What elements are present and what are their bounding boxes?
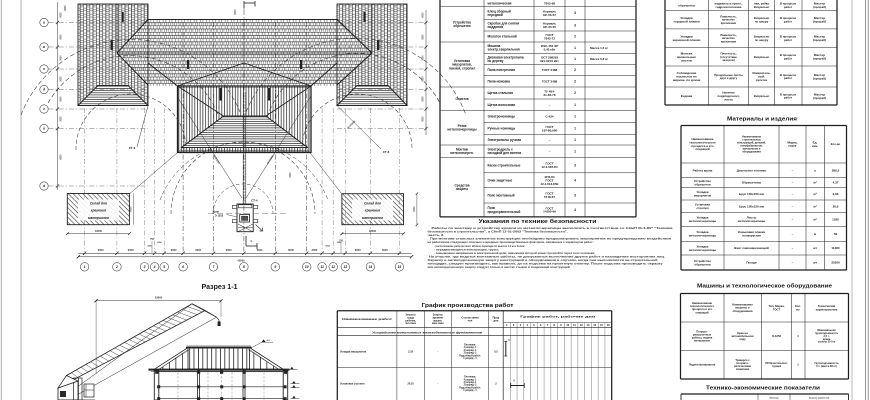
svg-text:безопасности в строительстве",: безопасности в строительстве", а СНиП 12… xyxy=(428,230,568,234)
svg-text:2: 2 xyxy=(574,35,576,39)
svg-text:Очки защитные: Очки защитные xyxy=(488,178,513,182)
svg-text:СТ-3: СТ-3 xyxy=(129,146,136,150)
svg-text:- передвигающиеся конструкции,: - передвигающиеся конструкции, грузы; xyxy=(434,248,499,251)
svg-text:Визуально: Визуально xyxy=(754,5,770,9)
svg-text:3 разряд -1: 3 разряд -1 xyxy=(464,382,477,384)
svg-text:м³: м³ xyxy=(813,181,816,185)
svg-text:Пояс монтажный: Пояс монтажный xyxy=(488,193,515,197)
svg-text:Щетка стальная: Щетка стальная xyxy=(488,91,514,95)
svg-text:трукция: трукция xyxy=(772,366,782,368)
svg-text:13: 13 xyxy=(343,265,347,269)
svg-text:При монтаже стальных элементов: При монтаже стальных элементов конструкц… xyxy=(430,237,672,241)
svg-text:2: 2 xyxy=(574,68,576,72)
svg-text:Масса 1,6 кг: Масса 1,6 кг xyxy=(590,46,609,50)
svg-text:4 разряд -1: 4 разряд -1 xyxy=(464,378,477,381)
svg-text:4: 4 xyxy=(153,265,156,269)
svg-text:маш.смен: маш.смен xyxy=(432,322,444,325)
svg-text:3000: 3000 xyxy=(195,248,201,252)
svg-text:ГОСТ 2488: ГОСТ 2488 xyxy=(542,79,558,83)
svg-text:Дизельное топливо: Дизельное топливо xyxy=(737,168,767,172)
svg-text:3000: 3000 xyxy=(312,248,318,252)
svg-text:материалов: материалов xyxy=(88,216,109,220)
svg-text:(прораб): (прораб) xyxy=(813,20,826,24)
svg-text:6 т. (масса 93 кг): 6 т. (масса 93 кг) xyxy=(816,364,837,368)
svg-text:Электропилы ручная: Электропилы ручная xyxy=(488,138,522,142)
svg-text:крепления: крепления xyxy=(721,40,736,44)
svg-text:1 разряд - 1: 1 разряд - 1 xyxy=(463,390,477,392)
svg-text:по дереву: по дереву xyxy=(488,59,504,63)
svg-text:3: 3 xyxy=(574,23,576,27)
svg-text:12: 12 xyxy=(331,265,335,269)
svg-text:поддонов: поддонов xyxy=(488,25,504,29)
svg-text:6000: 6000 xyxy=(423,12,425,18)
svg-text:6000: 6000 xyxy=(382,248,388,252)
svg-text:(прораб): (прораб) xyxy=(813,57,826,61)
svg-text:12000: 12000 xyxy=(369,229,377,233)
svg-text:Подсобный рабоч.: Подсобный рабоч. xyxy=(459,386,481,389)
svg-text:Подсобный рабоч.: Подсобный рабоч. xyxy=(459,354,481,357)
svg-text:НР-34-55: НР-34-55 xyxy=(543,25,556,29)
svg-text:металлочерепицы: металлочерепицы xyxy=(738,219,766,223)
svg-text:6000: 6000 xyxy=(131,206,133,212)
svg-text:2 разряд -2: 2 разряд -2 xyxy=(464,353,477,355)
svg-text:1: 1 xyxy=(574,138,576,142)
svg-text:3000: 3000 xyxy=(423,116,425,122)
svg-text:чел: чел xyxy=(468,319,473,322)
svg-text:289,5: 289,5 xyxy=(832,168,840,172)
svg-text:оборудования: оборудования xyxy=(742,149,761,153)
svg-text:12000: 12000 xyxy=(95,229,103,233)
svg-text:часть 3.: часть 3. xyxy=(428,233,445,237)
svg-text:металлочерепицы: металлочерепицы xyxy=(689,219,717,223)
svg-text:площадке, следует производить,: площадке, следует производить, как прави… xyxy=(428,262,664,266)
svg-text:Работы по монтажу и устройству: Работы по монтажу и устройству кровли из… xyxy=(432,226,674,230)
svg-text:Установка стропил: Установка стропил xyxy=(340,382,365,386)
svg-text:г: г xyxy=(43,107,45,111)
svg-text:1: 1 xyxy=(574,127,576,131)
svg-text:шт: шт xyxy=(813,246,818,250)
svg-text:3000: 3000 xyxy=(61,55,63,61)
svg-text:лежней, стропил: лежней, стропил xyxy=(449,66,476,70)
svg-text:Ендова: Ендова xyxy=(681,94,693,98)
svg-text:25300: 25300 xyxy=(831,261,840,265)
svg-text:Пила поперечная: Пила поперечная xyxy=(488,68,516,72)
svg-text:2: 2 xyxy=(574,79,576,83)
svg-text:2,16: 2,16 xyxy=(408,351,413,354)
svg-text:6000: 6000 xyxy=(235,9,237,15)
svg-text:Объемы: Объемы xyxy=(769,397,778,400)
svg-text:листа: листа xyxy=(724,97,733,101)
svg-text:6000: 6000 xyxy=(226,248,232,252)
svg-text:8: 8 xyxy=(243,265,245,269)
svg-text:Плотники:: Плотники: xyxy=(464,377,476,379)
svg-text:3 разряд -1: 3 разряд -1 xyxy=(464,350,477,352)
svg-text:На участке, где ведутся монтаж: На участке, где ведутся монтажные работы… xyxy=(429,254,665,258)
svg-text:Молоток стальной: Молоток стальной xyxy=(488,35,517,39)
svg-text:м³: м³ xyxy=(813,192,816,196)
svg-text:3: 3 xyxy=(574,193,576,197)
svg-text:6000: 6000 xyxy=(414,206,416,212)
svg-text:обрешетки: обрешетки xyxy=(453,24,470,28)
svg-text:(прораб): (прораб) xyxy=(813,76,826,80)
svg-text:Визуально: Визуально xyxy=(754,94,770,98)
svg-text:1 разряд - 1: 1 разряд - 1 xyxy=(463,358,477,360)
svg-text:3: 3 xyxy=(144,265,146,269)
svg-text:по шнуру: по шнуру xyxy=(755,38,769,42)
svg-text:насадкой для винтов: насадкой для винтов xyxy=(488,151,522,155)
svg-text:СТ-6: СТ-6 xyxy=(383,150,390,154)
svg-text:12.4.087-84: 12.4.087-84 xyxy=(541,165,557,169)
svg-text:График производства работ: График производства работ xyxy=(422,302,515,309)
svg-text:- расположение рабочих мест вб: - расположение рабочих мест вблизи переп… xyxy=(434,244,525,248)
svg-text:9: 9 xyxy=(274,265,276,269)
svg-text:6000: 6000 xyxy=(171,248,177,252)
svg-text:обрешетки: обрешетки xyxy=(694,182,710,186)
svg-text:Разрез 1-1: Разрез 1-1 xyxy=(202,284,238,291)
svg-text:и: и xyxy=(43,21,45,25)
svg-text:1: 1 xyxy=(574,57,576,61)
svg-text:операций: операций xyxy=(695,310,708,314)
svg-text:изм.: изм. xyxy=(812,144,818,148)
svg-text:Укладка мауэрлатов: Укладка мауэрлатов xyxy=(340,350,367,354)
svg-text:График работ, рабочие дни: График работ, рабочие дни xyxy=(520,315,596,319)
svg-text:металлочерепицы: металлочерепицы xyxy=(689,234,717,238)
svg-text:Склад для: Склад для xyxy=(364,201,381,205)
svg-text:по шнуру: по шнуру xyxy=(755,19,769,23)
svg-text:1: 1 xyxy=(84,265,86,269)
svg-text:ж: ж xyxy=(42,45,46,49)
svg-text:3000: 3000 xyxy=(423,76,425,82)
svg-text:полукруглая: полукруглая xyxy=(742,234,761,238)
svg-text:хранения: хранения xyxy=(90,209,107,213)
svg-text:друг к другу: друг к другу xyxy=(720,76,738,80)
svg-text:дни: дни xyxy=(493,319,498,322)
svg-text:Гвозди: Гвозди xyxy=(746,261,757,265)
svg-text:Подача материалов: Подача материалов xyxy=(689,363,716,367)
svg-text:крепления: крепления xyxy=(721,21,736,25)
svg-text:9,66: 9,66 xyxy=(833,192,839,196)
svg-text:Электроножницы: Электроножницы xyxy=(488,115,516,119)
svg-text:во: во xyxy=(796,307,800,311)
svg-text:0,45 кВт: 0,45 кВт xyxy=(544,48,556,52)
svg-text:С-424: С-424 xyxy=(545,115,554,119)
svg-text:электр.сверлильная: электр.сверлильная xyxy=(488,48,520,52)
svg-text:5: 5 xyxy=(163,265,165,269)
svg-text:передвой: передвой xyxy=(488,13,503,17)
svg-text:Пила-ножовка: Пила-ножовка xyxy=(488,79,511,83)
svg-text:2: 2 xyxy=(574,91,576,95)
svg-text:е: е xyxy=(43,67,45,71)
svg-text:187-80,000: 187-80,000 xyxy=(542,128,558,132)
svg-text:Обрешетины: Обрешетины xyxy=(742,181,762,185)
svg-text:11: 11 xyxy=(320,265,324,269)
svg-text:4 разряд -1: 4 разряд -1 xyxy=(464,346,477,349)
svg-text:1: 1 xyxy=(574,149,576,153)
svg-text:Кран: Кран xyxy=(213,210,220,214)
svg-text:Очистка: Очистка xyxy=(456,97,469,101)
svg-text:Затраты заработной: Затраты заработной xyxy=(809,397,830,400)
svg-text:ходу: ходу xyxy=(739,338,746,341)
svg-text:м³: м³ xyxy=(813,204,816,208)
svg-text:Э-1252: Э-1252 xyxy=(215,214,224,218)
svg-text:работ: работ xyxy=(784,19,793,23)
svg-text:работ: работ xyxy=(784,56,793,60)
svg-text:6000: 6000 xyxy=(288,248,294,252)
svg-text:36,9: 36,9 xyxy=(833,204,839,208)
svg-text:Работа крана: Работа крана xyxy=(693,168,713,172)
svg-text:Склад для: Склад для xyxy=(90,201,107,205)
svg-text:-: - xyxy=(437,383,438,386)
svg-text:зазоров): зазоров) xyxy=(722,58,734,62)
svg-text:СТ-4: СТ-4 xyxy=(251,199,258,203)
svg-text:5718-67: 5718-67 xyxy=(544,195,555,199)
svg-text:обрешетки: обрешетки xyxy=(678,3,695,7)
svg-text:Каски строительные: Каски строительные xyxy=(488,163,521,167)
svg-text:15: 15 xyxy=(398,265,402,269)
svg-text:3000: 3000 xyxy=(423,55,425,61)
svg-text:2 разряд -2: 2 разряд -2 xyxy=(464,385,477,387)
svg-text:Визуально: Визуально xyxy=(754,55,770,59)
svg-text:Наименование работ: Наименование работ xyxy=(342,317,393,321)
svg-text:3: 3 xyxy=(574,11,576,15)
svg-text:7502-98: 7502-98 xyxy=(544,1,555,5)
svg-text:работ: работ xyxy=(784,96,793,100)
svg-text:предохранительный: предохранительный xyxy=(488,210,521,214)
svg-text:ГОСТ 2488: ГОСТ 2488 xyxy=(542,68,558,72)
svg-text:характеристика: характеристика xyxy=(816,307,838,311)
svg-text:стрелы 25-5 м: стрелы 25-5 м xyxy=(818,341,836,344)
svg-text:(прораб): (прораб) xyxy=(813,38,826,42)
svg-text:а: а xyxy=(43,184,45,188)
svg-text:карнизной планки: карнизной планки xyxy=(673,38,701,42)
svg-text:6000: 6000 xyxy=(355,248,361,252)
svg-text:ГОСТ: ГОСТ xyxy=(789,144,797,148)
svg-text:Технико-экономические показате: Технико-экономические показатели xyxy=(706,385,820,391)
svg-text:61-84-76: 61-84-76 xyxy=(543,93,555,97)
svg-text:14: 14 xyxy=(369,265,373,269)
svg-text:металлическая: металлическая xyxy=(488,1,512,5)
svg-text:ширине, по длине: ширине, по длине xyxy=(673,78,701,82)
svg-text:6000: 6000 xyxy=(61,154,63,160)
svg-text:мауэрлатов: мауэрлатов xyxy=(694,194,712,198)
svg-text:металлочерепицы: металлочерепицы xyxy=(447,128,476,132)
svg-text:3000: 3000 xyxy=(61,116,63,122)
svg-text:3000: 3000 xyxy=(61,34,63,40)
svg-text:Брус 150х150 мм: Брус 150х150 мм xyxy=(739,204,765,208)
svg-text:защиты: защиты xyxy=(456,187,469,191)
svg-text:Кол-во: Кол-во xyxy=(831,142,841,146)
svg-text:-: - xyxy=(437,351,438,354)
svg-text:торцевой планки: торцевой планки xyxy=(673,20,699,24)
svg-text:материалов: материалов xyxy=(362,216,383,220)
svg-text:4,37: 4,37 xyxy=(833,181,839,185)
svg-text:2: 2 xyxy=(115,265,118,269)
svg-text:23600: 23600 xyxy=(155,296,163,300)
svg-text:Э-1252: Э-1252 xyxy=(772,334,782,338)
svg-text:работ: работ xyxy=(784,76,793,80)
svg-text:(прораб): (прораб) xyxy=(813,96,826,100)
svg-text:металлочерепицы: металлочерепицы xyxy=(689,248,717,252)
svg-text:гидроизол.пленка: гидроизол.пленка xyxy=(716,5,742,9)
svg-text:материалов: материалов xyxy=(694,339,710,342)
svg-text:операций: операций xyxy=(695,147,710,151)
svg-text:Материалы и изделия: Материалы и изделия xyxy=(727,117,797,123)
svg-text:6: 6 xyxy=(182,265,184,269)
svg-text:Плотники:: Плотники: xyxy=(464,344,476,346)
svg-text:Машины и технологическое обору: Машины и технологическое оборудование xyxy=(697,282,832,289)
svg-text:Винт самонарезающий: Винт самонарезающий xyxy=(734,246,769,250)
svg-text:м²: м² xyxy=(813,217,816,221)
svg-text:Масса 6,8 кг: Масса 6,8 кг xyxy=(590,57,609,61)
svg-text:3000: 3000 xyxy=(61,96,63,102)
svg-text:НР-56-57: НР-56-57 xyxy=(543,13,556,17)
svg-text:3000: 3000 xyxy=(423,96,425,102)
svg-text:Щетка волосяная: Щетка волосяная xyxy=(488,103,516,107)
svg-text:3: 3 xyxy=(574,163,576,167)
svg-text:захватами: захватами xyxy=(736,368,750,371)
svg-text:на работников следующих опасны: на работников следующих опасных и вредны… xyxy=(428,240,594,244)
svg-text:7: 7 xyxy=(213,265,215,269)
svg-text:4: 4 xyxy=(574,178,576,182)
svg-text:работ: работ xyxy=(784,38,793,42)
svg-text:11380: 11380 xyxy=(831,246,840,250)
svg-text:Окраску и антикоррозионную защ: Окраску и антикоррозионную защиту констр… xyxy=(428,258,659,262)
svg-text:Устройство монолитных железобе: Устройство монолитных железобетонных фун… xyxy=(372,331,483,334)
svg-text:20,10: 20,10 xyxy=(407,383,414,386)
svg-text:6000: 6000 xyxy=(257,248,263,252)
svg-text:7842-72: 7842-72 xyxy=(544,36,555,40)
svg-text:1: 1 xyxy=(574,46,576,50)
svg-text:обрешетки: обрешетки xyxy=(694,262,710,266)
svg-text:л: л xyxy=(814,168,816,172)
svg-text:2000: 2000 xyxy=(290,172,292,178)
svg-text:работ: работ xyxy=(784,5,793,9)
svg-text:оборудования: оборудования xyxy=(732,309,752,313)
svg-text:+6,0: +6,0 xyxy=(266,340,270,342)
svg-text:1: 1 xyxy=(574,115,576,119)
svg-text:чел.смен: чел.смен xyxy=(405,322,417,325)
svg-text:хранения: хранения xyxy=(364,209,381,213)
svg-text:1530: 1530 xyxy=(832,217,839,221)
svg-text:14185-69: 14185-69 xyxy=(543,210,556,214)
svg-text:6000: 6000 xyxy=(128,248,134,252)
svg-text:или антикоррозионную защиту сл: или антикоррозионную защиту следует толь… xyxy=(428,265,571,269)
svg-text:1: 1 xyxy=(574,103,576,107)
svg-text:металлочереп.: металлочереп. xyxy=(450,151,474,155)
svg-text:12.4.013-85Е: 12.4.013-85Е xyxy=(540,182,558,186)
svg-text:6000: 6000 xyxy=(65,5,67,11)
svg-text:ГОСТ: ГОСТ xyxy=(773,307,781,311)
svg-text:3000: 3000 xyxy=(423,34,425,40)
svg-text:4: 4 xyxy=(574,208,576,212)
svg-text:10: 10 xyxy=(305,265,309,269)
svg-text:Указания по технике безопаснос: Указания по технике безопасности xyxy=(479,218,597,225)
svg-text:листов: листов xyxy=(681,58,692,62)
svg-text:45500: 45500 xyxy=(237,258,245,262)
svg-text:- повышенное напряжение в элек: - повышенное напряжение в электрической … xyxy=(434,251,595,255)
svg-text:59: 59 xyxy=(834,232,838,236)
svg-text:(прораб): (прораб) xyxy=(813,5,826,9)
svg-text:Брус 150х150 мм: Брус 150х150 мм xyxy=(739,192,765,196)
svg-text:в: в xyxy=(43,127,45,131)
svg-text:0,5: 0,5 xyxy=(494,351,498,354)
svg-text:6000: 6000 xyxy=(61,12,63,18)
svg-text:рулетка: рулетка xyxy=(756,78,768,82)
svg-text:6000: 6000 xyxy=(98,248,104,252)
svg-text:стропил: стропил xyxy=(696,206,708,210)
svg-text:021-021б кВт: 021-021б кВт xyxy=(540,59,559,63)
svg-text:3000: 3000 xyxy=(61,76,63,82)
svg-text:шт: шт xyxy=(813,261,818,265)
svg-text:д: д xyxy=(43,88,45,92)
svg-text:Ручные ножницы: Ручные ножницы xyxy=(488,127,516,131)
